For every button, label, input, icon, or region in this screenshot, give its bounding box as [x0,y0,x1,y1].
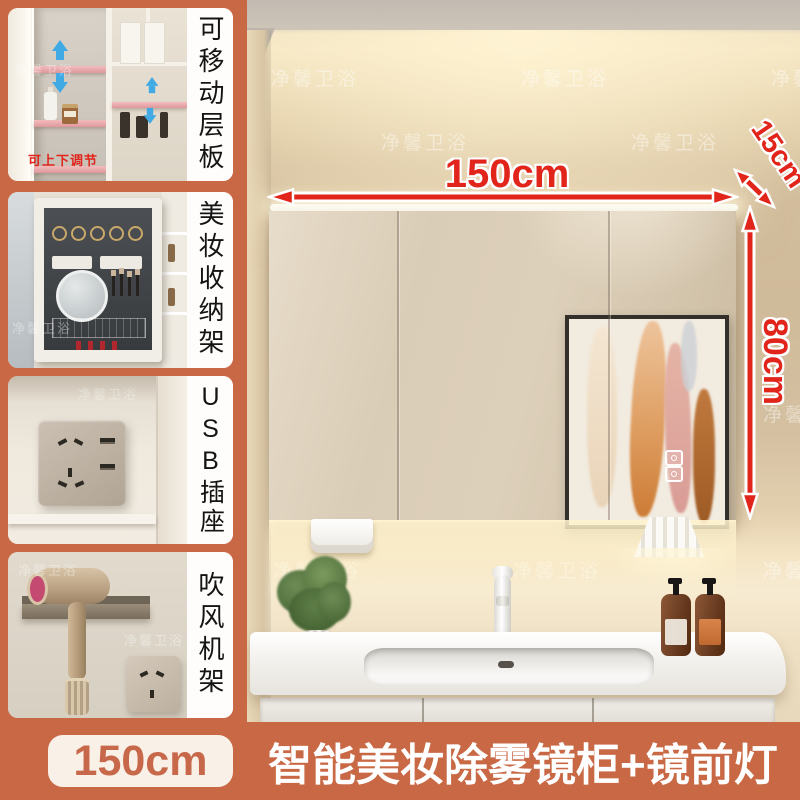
drawer-seam [592,698,594,722]
brand-watermark: 净馨卫浴 [763,556,800,583]
soap-bottle [695,594,725,656]
panel-photo-hairdryer-rack: 净馨卫浴 净馨卫浴 [8,552,187,718]
brand-watermark: 净馨卫浴 [771,64,800,91]
feature-panel-hairdryer-rack: 净馨卫浴 净馨卫浴 吹风机架 [8,552,233,718]
product-image: 可上下调节 净馨卫浴 可移动层板 [0,0,800,800]
panel-label: 吹风机架 [187,552,233,718]
height-arrow-icon [741,205,759,520]
usb-port [100,438,115,444]
feature-panel-usb-socket: 净馨卫浴 USB插座 [8,376,233,544]
lipstick [112,341,117,350]
brand-watermark: 净馨卫浴 [14,60,74,79]
drawer-seam [422,698,424,722]
brand-watermark: 净馨卫浴 [12,318,72,337]
toiletry-bottle [168,244,175,262]
brand-watermark: 净馨卫浴 [631,128,719,155]
round-makeup-mirror [56,270,108,322]
size-badge: 150cm [48,735,233,787]
lipstick [76,341,81,350]
main-product-photo: 净馨卫浴 净馨卫浴 净馨卫浴 净馨卫浴 净馨卫浴 净馨卫浴 净馨卫浴 净馨卫浴 … [247,0,800,722]
makeup-brush [120,274,123,296]
panel-label: USB插座 [187,376,233,544]
panel-label-text: 美妆收纳架 [197,200,223,360]
arrow-up-icon [52,40,68,51]
feature-panel-movable-shelves: 可上下调节 净馨卫浴 可移动层板 [8,8,233,181]
wall-shelf [8,514,156,524]
touch-control-icon [665,450,683,466]
soap-bottle [661,594,691,656]
hand-towel [311,519,373,553]
panel-photo-usb-socket: 净馨卫浴 [8,376,187,544]
brand-watermark: 净馨卫浴 [18,560,78,579]
pump-dispenser [673,578,679,595]
brand-watermark: 净馨卫浴 [271,64,359,91]
cosmetic-jar [62,104,78,124]
mirror-strip [8,192,34,368]
panel-photo-movable-shelves: 可上下调节 净馨卫浴 [8,8,187,181]
mirror-cabinet [269,211,736,522]
shelf-edge [162,312,187,315]
feature-panel-makeup-rack: 净馨卫浴 美妆收纳架 [8,192,233,368]
makeup-brush [128,277,131,296]
brand-watermark: 净馨卫浴 [78,384,138,403]
adjustable-note: 可上下调节 [28,150,98,169]
potted-plant [269,552,353,638]
storage-box [144,22,165,64]
arrow-up-icon [146,77,159,86]
arrow-down-icon [144,115,157,124]
side-wall [247,30,271,722]
brand-watermark: 净馨卫浴 [124,630,184,649]
faucet [494,575,511,637]
panel-label: 可移动层板 [187,8,233,181]
cabinet-side-panel [156,376,187,544]
panel-photo-makeup-rack: 净馨卫浴 [8,192,187,368]
jewelry-ring-hook [71,226,86,241]
perfume-bottle [120,112,130,138]
bottle-label [665,619,687,645]
panel-label-text: USB插座 [198,383,223,537]
perfume-bottle [160,112,168,138]
ceiling [247,0,800,30]
artwork-reflection [565,315,729,529]
lipstick [100,341,105,350]
footer-bar: 150cm 智能美妆除雾镜柜+镜前灯 [0,722,800,800]
bottle-label [699,619,721,645]
hair-dryer-handle [68,602,86,680]
touch-control-icon [665,466,683,482]
storage-tray [52,256,92,269]
faucet-handle [496,596,509,606]
makeup-brush [136,275,139,296]
brand-watermark: 净馨卫浴 [521,64,609,91]
lipstick [88,341,93,350]
sink-overflow [498,661,514,668]
power-socket [126,656,180,712]
jewelry-ring-hook [52,226,67,241]
shelf-edge [162,232,187,235]
cosmetic-bottle [44,92,57,120]
dimension-height-label: 80cm [755,318,794,405]
pump-dispenser [707,578,713,595]
storage-box [120,22,141,64]
panel-label-text: 吹风机架 [197,571,223,699]
power-socket [38,420,126,506]
cabinet-door-seam [397,211,399,520]
jewelry-ring-hook [109,226,124,241]
makeup-brush [112,276,115,296]
width-arrow-icon [267,188,739,206]
product-title: 智能美妆除雾镜柜+镜前灯 [268,722,788,800]
usb-port [100,464,115,470]
side-shelves [162,192,187,368]
jewelry-ring-hook [128,226,143,241]
shelf-edge [162,272,187,275]
jewelry-ring-hook [90,226,105,241]
hair-dryer-filter-cap [65,678,89,715]
toiletry-bottle [168,288,175,306]
vanity-drawers [260,698,775,722]
dryer-rack-front [22,604,150,619]
brand-watermark: 净馨卫浴 [381,128,469,155]
arrow-down-icon [52,82,68,93]
panel-label: 美妆收纳架 [187,192,233,368]
panel-label-text: 可移动层板 [197,15,223,175]
cabinet-door-seam [608,211,610,520]
